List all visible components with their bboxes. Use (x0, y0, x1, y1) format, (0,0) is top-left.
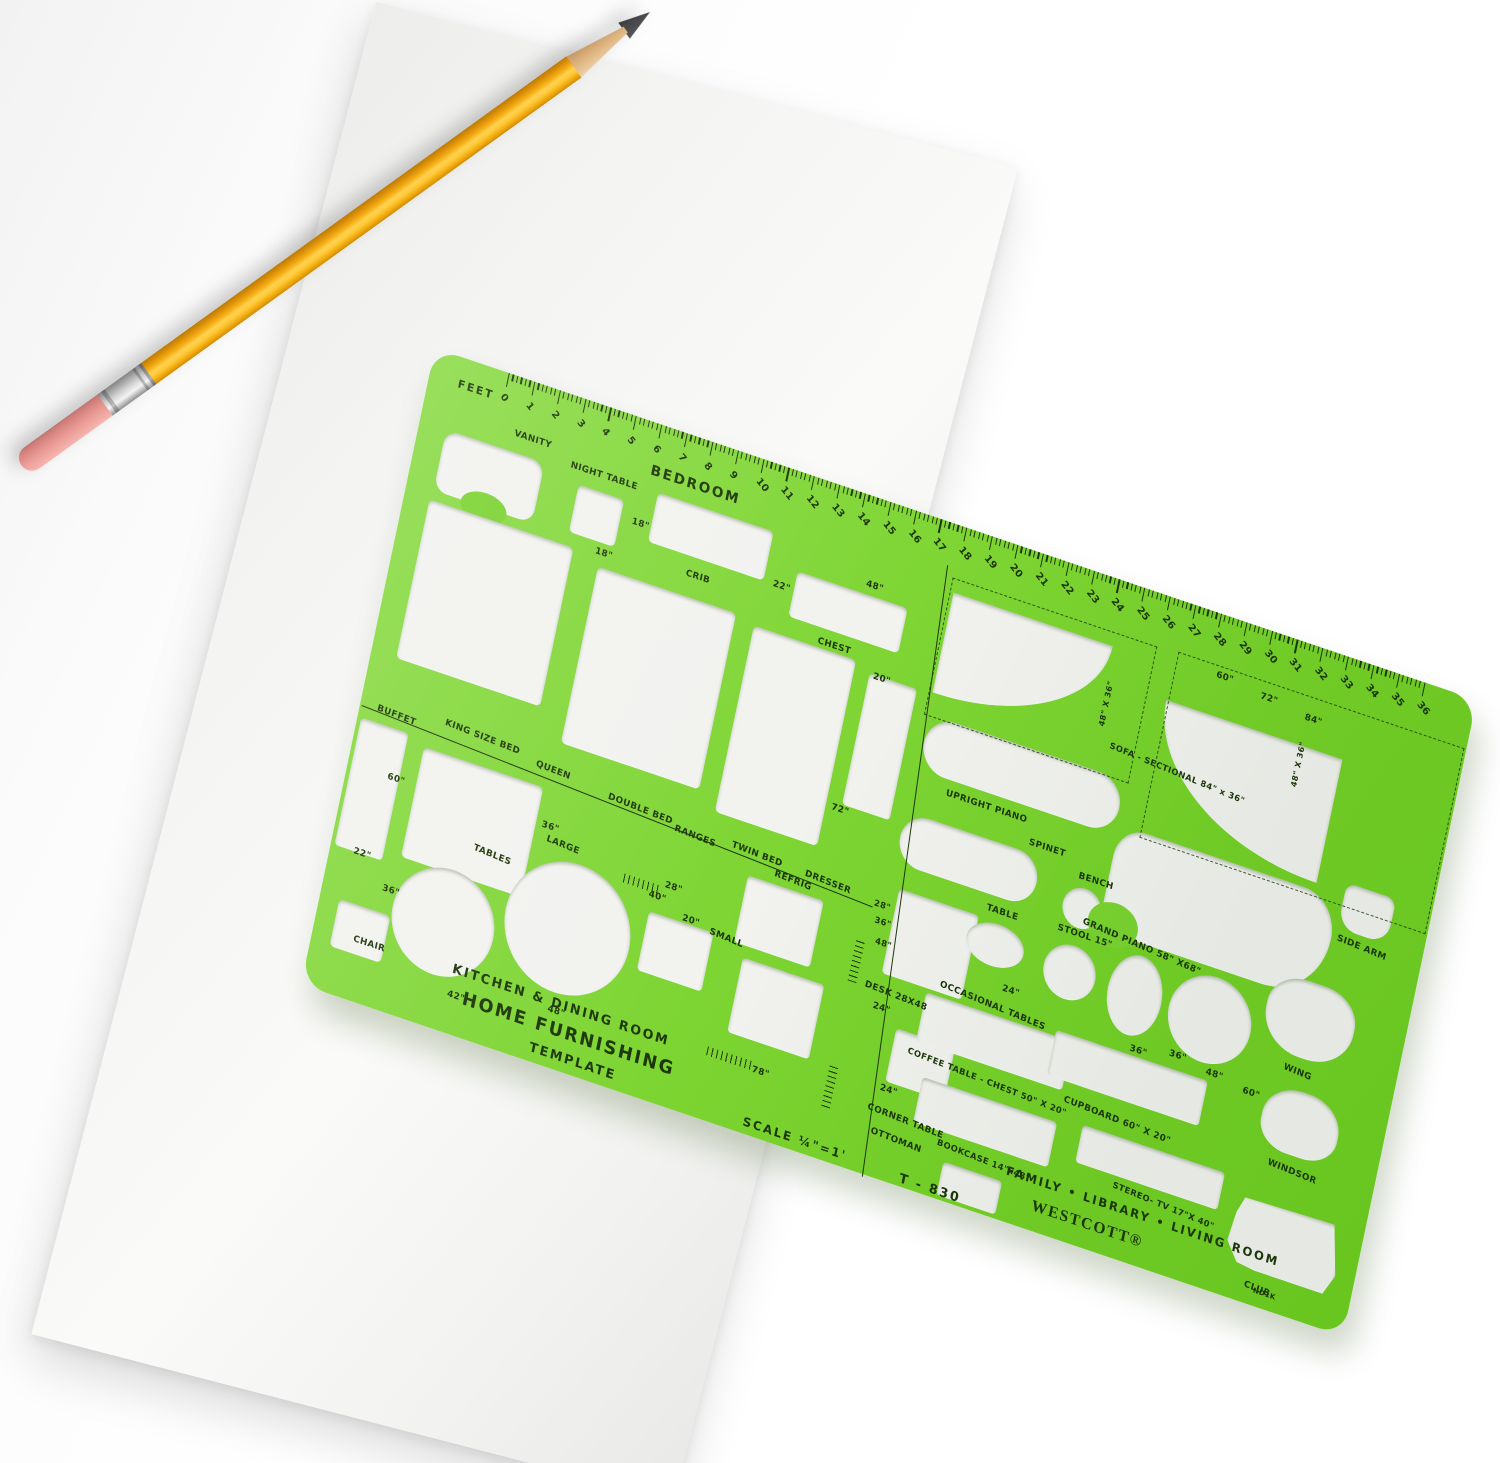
ruler-tick-minor (834, 483, 837, 490)
ruler-tick-minor (728, 447, 731, 454)
ruler-tick-minor (957, 525, 960, 532)
ruler-tick-minor (1308, 644, 1311, 651)
ruler-tick-minor (668, 427, 671, 434)
ruler-tick-major (938, 519, 942, 533)
label-dim-36tables: 36" (381, 884, 400, 899)
ruler-tick-minor (1207, 609, 1210, 616)
cutout-range-small (637, 911, 714, 992)
ruler-tick-minor (1224, 615, 1227, 622)
ruler-tick-minor (757, 457, 760, 464)
ruler-tick-minor (1058, 559, 1061, 566)
ruler-number: 0 (498, 392, 510, 405)
ruler-tick-major (989, 536, 993, 550)
cutout-occ-ellipse (1100, 947, 1170, 1043)
ruler-tick-major (837, 485, 841, 499)
ruler-number: 23 (1084, 588, 1101, 606)
ruler-tick-minor (524, 379, 527, 386)
label-spinet: SPINET (1028, 838, 1066, 859)
ruler-tick-minor (698, 437, 701, 444)
ruler-tick-minor (1376, 667, 1379, 674)
ruler-tick-minor (677, 430, 680, 437)
ruler-number: 27 (1185, 622, 1202, 640)
ruler-tick-minor (529, 380, 532, 387)
cutout-chest (788, 571, 907, 653)
ruler-tick-minor (1283, 635, 1286, 642)
ruler-tick-major (1396, 674, 1400, 688)
ruler-tick-minor (1279, 634, 1282, 641)
ruler-tick-minor (796, 470, 799, 477)
ruler-tick-minor (541, 384, 544, 391)
ruler-tick-minor (1088, 569, 1091, 576)
ruler-tick-minor (749, 455, 752, 462)
ruler-number: 20 (1007, 562, 1024, 580)
label-wing: WING (1282, 1063, 1312, 1083)
label-side-arm: SIDE ARM (1336, 934, 1387, 963)
ruler-tick-minor (1020, 546, 1023, 553)
tick-cluster-ticks-78 (706, 1046, 751, 1070)
ruler-tick-minor (1215, 612, 1218, 619)
ruler-tick-minor (1241, 621, 1244, 628)
ruler-tick-minor (1084, 568, 1087, 575)
ruler-tick-minor (567, 393, 570, 400)
ruler-tick-minor (1410, 678, 1413, 685)
ruler-tick-minor (618, 410, 621, 417)
label-dim-28div: 28" (873, 899, 891, 913)
ruler-tick-minor (842, 486, 845, 493)
ruler-tick-major (506, 373, 510, 387)
ruler-tick-minor (1232, 618, 1235, 625)
cutout-bookcase (913, 1077, 1057, 1167)
ruler-tick-minor (1164, 595, 1167, 602)
ruler-number: 26 (1160, 613, 1177, 631)
label-club: CLUB (1243, 1280, 1271, 1299)
ruler-tick-major (633, 416, 637, 430)
ruler-tick-minor (1406, 677, 1409, 684)
ruler-tick-major (1269, 631, 1273, 645)
ruler-tick-minor (702, 439, 705, 446)
ruler-number: 32 (1313, 665, 1330, 683)
label-dim-60cup: 60" (1241, 1087, 1260, 1102)
label-dim-24corner: 24" (879, 1084, 898, 1099)
ruler-tick-minor (745, 453, 748, 460)
ruler-tick-minor (1304, 642, 1307, 649)
ruler-tick-minor (804, 473, 807, 480)
ruler-tick-minor (1109, 576, 1112, 583)
ruler-tick-minor (1274, 632, 1277, 639)
ruler-tick-minor (893, 503, 896, 510)
cutout-king-bed (396, 499, 573, 706)
ruler-tick-minor (800, 472, 803, 479)
label-ranges: RANGES (673, 825, 716, 850)
ruler-tick-minor (1190, 604, 1193, 611)
ruler-tick-minor (1147, 589, 1150, 596)
label-windsor: WINDSOR (1266, 1158, 1317, 1187)
ruler-tick-minor (1359, 661, 1362, 668)
ruler-tick-major (760, 459, 764, 473)
cutout-night-table (569, 485, 624, 547)
ruler-tick-major (684, 433, 688, 447)
ruler-tick-minor (935, 518, 938, 525)
ruler-tick-minor (1351, 658, 1354, 665)
ruler-tick-minor (910, 509, 913, 516)
ruler-tick-minor (520, 377, 523, 384)
ruler-number: 8 (701, 461, 713, 474)
ruler-tick-major (531, 382, 535, 396)
ruler-tick-minor (516, 376, 519, 383)
ruler-tick-minor (575, 396, 578, 403)
ruler-tick-minor (579, 397, 582, 404)
ruler-number: 7 (676, 452, 688, 465)
ruler-tick-major (735, 450, 739, 464)
product-photo: FEET 01234567891011121314151617181920212… (0, 0, 1500, 1463)
ruler-tick-minor (1007, 542, 1010, 549)
ruler-number: 19 (982, 553, 999, 571)
cutout-dresser-low (727, 957, 824, 1059)
ruler-tick-minor (1130, 583, 1133, 590)
ruler-tick-minor (1228, 616, 1231, 623)
ruler-tick-minor (1126, 582, 1129, 589)
ruler-tick-minor (906, 508, 909, 515)
ruler-tick-minor (537, 383, 540, 390)
ruler-tick-minor (791, 469, 794, 476)
ruler-tick-minor (571, 394, 574, 401)
ruler-tick-minor (978, 532, 981, 539)
ruler-tick-major (811, 476, 815, 490)
ruler-number: 30 (1262, 648, 1279, 666)
ruler-tick-minor (554, 389, 557, 396)
ruler-tick-minor (1173, 598, 1176, 605)
ruler-tick-major (1320, 648, 1324, 662)
ruler-tick-minor (868, 495, 871, 502)
ruler-tick-minor (872, 496, 875, 503)
ruler-tick-minor (851, 489, 854, 496)
ruler-tick-major (862, 493, 866, 507)
ruler-number: 24 (1109, 596, 1126, 614)
label-dim-48cup: 48" (1205, 1068, 1224, 1083)
ruler-tick-minor (1291, 638, 1294, 645)
ruler-tick-minor (1342, 655, 1345, 662)
ruler-tick-minor (1122, 581, 1125, 588)
ruler-tick-minor (1033, 551, 1036, 558)
ruler-tick-minor (961, 526, 964, 533)
ruler-tick-minor (855, 490, 858, 497)
ruler-tick-minor (1389, 671, 1392, 678)
ruler-tick-major (557, 390, 561, 404)
ruler-tick-minor (1262, 628, 1265, 635)
ruler-tick-minor (1080, 566, 1083, 573)
ruler-tick-major (786, 467, 790, 481)
ruler-tick-minor (1287, 636, 1290, 643)
ruler-tick-major (1218, 614, 1222, 628)
ruler-tick-minor (588, 400, 591, 407)
ruler-tick-minor (1096, 572, 1099, 579)
pencil-eraser (14, 395, 113, 476)
label-dim-36queen: 36" (541, 821, 560, 836)
ruler-tick-minor (986, 535, 989, 542)
ruler-number: 10 (753, 476, 770, 494)
ruler-tick-minor (546, 386, 549, 393)
ruler-tick-minor (999, 539, 1002, 546)
ruler-tick-major (1370, 665, 1374, 679)
ruler-number: 3 (574, 418, 586, 431)
ruler-number: 9 (727, 469, 739, 482)
cutout-double-bed (561, 567, 736, 790)
label-large: LARGE (545, 835, 580, 857)
ruler-tick-minor (1330, 651, 1333, 658)
ruler-tick-minor (880, 499, 883, 506)
label-dim-28range: 28" (664, 881, 683, 896)
ruler-tick-minor (1258, 626, 1261, 633)
ruler-tick-minor (1105, 575, 1108, 582)
ruler-tick-minor (673, 429, 676, 436)
ruler-tick-major (964, 528, 968, 542)
ruler-tick-minor (724, 446, 727, 453)
ruler-tick-major (1192, 605, 1196, 619)
ruler-tick-minor (876, 498, 879, 505)
tick-cluster-ticks-div-lower (821, 1064, 838, 1108)
ruler-tick-minor (825, 480, 828, 487)
ruler-number: 22 (1058, 579, 1075, 597)
ruler-tick-minor (1300, 641, 1303, 648)
ruler-tick-minor (681, 432, 684, 439)
ruler-number: 33 (1338, 674, 1355, 692)
ruler-number: 16 (906, 528, 923, 546)
ruler-tick-minor (1152, 591, 1155, 598)
label-dim-24occ: 24" (1001, 985, 1020, 1000)
ruler-tick-minor (1063, 561, 1066, 568)
ruler-tick-minor (1380, 668, 1383, 675)
ruler-number: 35 (1389, 691, 1406, 709)
ruler-number: 13 (829, 502, 846, 520)
ruler-tick-minor (1185, 602, 1188, 609)
ruler-tick-major (913, 510, 917, 524)
cutout-desk (882, 889, 979, 1000)
ruler-tick-minor (1003, 541, 1006, 548)
ruler-tick-major (1116, 579, 1120, 593)
ruler-tick-minor (808, 475, 811, 482)
ruler-tick-minor (846, 488, 849, 495)
ruler-tick-minor (1236, 619, 1239, 626)
label-ottoman: OTTOMAN (869, 1127, 922, 1156)
ruler-number: 1 (523, 400, 535, 413)
ruler-number: 14 (855, 510, 872, 528)
ruler-tick-major (1091, 571, 1095, 585)
ruler-tick-minor (995, 538, 998, 545)
ruler-number: 4 (600, 426, 612, 439)
ruler-tick-minor (613, 409, 616, 416)
ruler-number: 12 (804, 493, 821, 511)
cutout-windsor-chair (1256, 1081, 1345, 1169)
ruler-tick-major (887, 502, 891, 516)
ruler-tick-minor (944, 520, 947, 527)
ruler-tick-minor (605, 406, 608, 413)
ruler-tick-minor (1393, 672, 1396, 679)
label-vanity: VANITY (513, 430, 552, 451)
ruler-tick-minor (918, 512, 921, 519)
ruler-tick-minor (753, 456, 756, 463)
label-dim-18a: 18" (631, 518, 650, 533)
ruler-number: 34 (1363, 682, 1380, 700)
ruler-tick-minor (1037, 552, 1040, 559)
label-double-bed: DOUBLE BED (607, 793, 674, 827)
ruler-tick-minor (770, 462, 773, 469)
ruler-tick-minor (1024, 548, 1027, 555)
ruler-tick-major (1065, 562, 1069, 576)
cutout-stool-15 (1038, 937, 1100, 1007)
ruler-tick-minor (974, 530, 977, 537)
ruler-tick-minor (1338, 654, 1341, 661)
label-dim-22crib: 22" (772, 580, 791, 595)
ruler-tick-minor (639, 417, 642, 424)
ruler-tick-major (608, 407, 612, 421)
ruler-tick-minor (927, 515, 930, 522)
ruler-tick-minor (897, 505, 900, 512)
ruler-tick-minor (1385, 669, 1388, 676)
ruler-tick-major (1421, 682, 1425, 696)
ruler-tick-minor (1198, 606, 1201, 613)
label-queen: QUEEN (535, 760, 572, 782)
ruler-tick-major (1243, 622, 1247, 636)
label-dim-24desk: 24" (872, 1002, 891, 1017)
ruler-number: 28 (1211, 631, 1228, 649)
ruler-tick-minor (1317, 646, 1320, 653)
ruler-tick-minor (1402, 675, 1405, 682)
ruler-tick-minor (969, 529, 972, 536)
ruler-tick-minor (885, 500, 888, 507)
ruler-tick-minor (647, 420, 650, 427)
ruler-tick-minor (690, 435, 693, 442)
ruler-tick-minor (732, 449, 735, 456)
ruler-number: 25 (1135, 605, 1152, 623)
ruler-tick-minor (1249, 624, 1252, 631)
ruler-tick-minor (1177, 599, 1180, 606)
cutout-dresser-tall (842, 673, 917, 820)
ruler-tick-minor (656, 423, 659, 430)
ruler-number: 36 (1414, 699, 1431, 717)
label-table: TABLE (986, 904, 1019, 923)
cutout-spinet (895, 811, 1042, 908)
ruler-tick-minor (664, 426, 667, 433)
label-dim-40: 40" (648, 890, 667, 905)
ruler-tick-minor (1325, 649, 1328, 656)
ruler-tick-minor (1211, 611, 1214, 618)
ruler-tick-minor (622, 412, 625, 419)
ruler-tick-minor (1160, 593, 1163, 600)
ruler-number: 29 (1236, 639, 1253, 657)
ruler-tick-minor (1181, 601, 1184, 608)
ruler-tick-minor (829, 482, 832, 489)
ruler-tick-minor (592, 402, 595, 409)
ruler-tick-minor (596, 403, 599, 410)
ruler-tick-minor (1046, 555, 1049, 562)
ruler-tick-minor (550, 387, 553, 394)
ruler-tick-minor (1266, 629, 1269, 636)
label-dim-78: 78" (751, 1066, 770, 1081)
ruler-tick-minor (1113, 578, 1116, 585)
ruler-tick-minor (719, 445, 722, 452)
ruler-tick-minor (1054, 558, 1057, 565)
ruler-tick-minor (821, 479, 824, 486)
ruler-tick-minor (902, 506, 905, 513)
ruler-tick-minor (512, 374, 515, 381)
ruler-tick-minor (1355, 659, 1358, 666)
ruler-tick-minor (1313, 645, 1316, 652)
ruler-number: 5 (625, 435, 637, 448)
ruler-number: 15 (880, 519, 897, 537)
ruler-tick-minor (1101, 573, 1104, 580)
ruler-tick-minor (783, 466, 786, 473)
ruler-tick-major (1142, 588, 1146, 602)
label-king-size-bed: KING SIZE BED (444, 719, 521, 757)
ruler-tick-major (1040, 553, 1044, 567)
ruler-number: 6 (650, 443, 662, 456)
ruler-tick-minor (1363, 662, 1366, 669)
ruler-number: 11 (779, 485, 796, 503)
ruler-tick-minor (1012, 543, 1015, 550)
ruler-tick-minor (1368, 664, 1371, 671)
ruler-tick-minor (563, 392, 566, 399)
ruler-tick-minor (741, 452, 744, 459)
ruler-feet-label: FEET (457, 377, 496, 402)
ruler-tick-major (582, 399, 586, 413)
tick-cluster-ticks-div-upper (848, 939, 865, 983)
ruler-tick-major (1294, 639, 1298, 653)
label-dim-36div: 36" (874, 916, 892, 930)
ruler-tick-minor (923, 513, 926, 520)
ruler-tick-major (1167, 596, 1171, 610)
ruler-tick-major (1015, 545, 1019, 559)
label-dim-48chest: 48" (865, 580, 884, 595)
ruler-tick-minor (774, 463, 777, 470)
ruler-tick-minor (766, 460, 769, 467)
ruler-number: 2 (549, 409, 561, 422)
ruler-tick-minor (1414, 679, 1417, 686)
ruler-tick-minor (626, 413, 629, 420)
ruler-tick-minor (1156, 592, 1159, 599)
ruler-tick-minor (694, 436, 697, 443)
ruler-tick-minor (643, 419, 646, 426)
ruler-tick-minor (1135, 585, 1138, 592)
ruler-tick-minor (1075, 565, 1078, 572)
ruler-tick-major (659, 425, 663, 439)
ruler-tick-minor (1334, 652, 1337, 659)
ruler-number: 21 (1033, 570, 1050, 588)
ruler-tick-minor (948, 522, 951, 529)
ruler-tick-minor (779, 465, 782, 472)
ruler-tick-major (709, 442, 713, 456)
cutout-crib (648, 493, 774, 581)
ruler-number: 18 (957, 545, 974, 563)
ruler-tick-minor (931, 516, 934, 523)
ruler-tick-minor (952, 523, 955, 530)
ruler-tick-minor (1419, 681, 1422, 688)
ruler-tick-minor (630, 414, 633, 421)
ruler-tick-minor (1071, 563, 1074, 570)
ruler-tick-minor (859, 492, 862, 499)
ruler-tick-minor (652, 422, 655, 429)
label-dim-18b: 18" (594, 547, 613, 562)
ruler-number: 17 (931, 536, 948, 554)
ruler-tick-major (1345, 656, 1349, 670)
ruler-tick-minor (982, 533, 985, 540)
ruler-tick-minor (1029, 549, 1032, 556)
ruler-tick-minor (601, 404, 604, 411)
ruler-tick-minor (707, 440, 710, 447)
ruler-tick-minor (1139, 586, 1142, 593)
ruler-number: 31 (1287, 656, 1304, 674)
label-crib: CRIB (685, 569, 711, 586)
ruler-tick-minor (715, 443, 718, 450)
